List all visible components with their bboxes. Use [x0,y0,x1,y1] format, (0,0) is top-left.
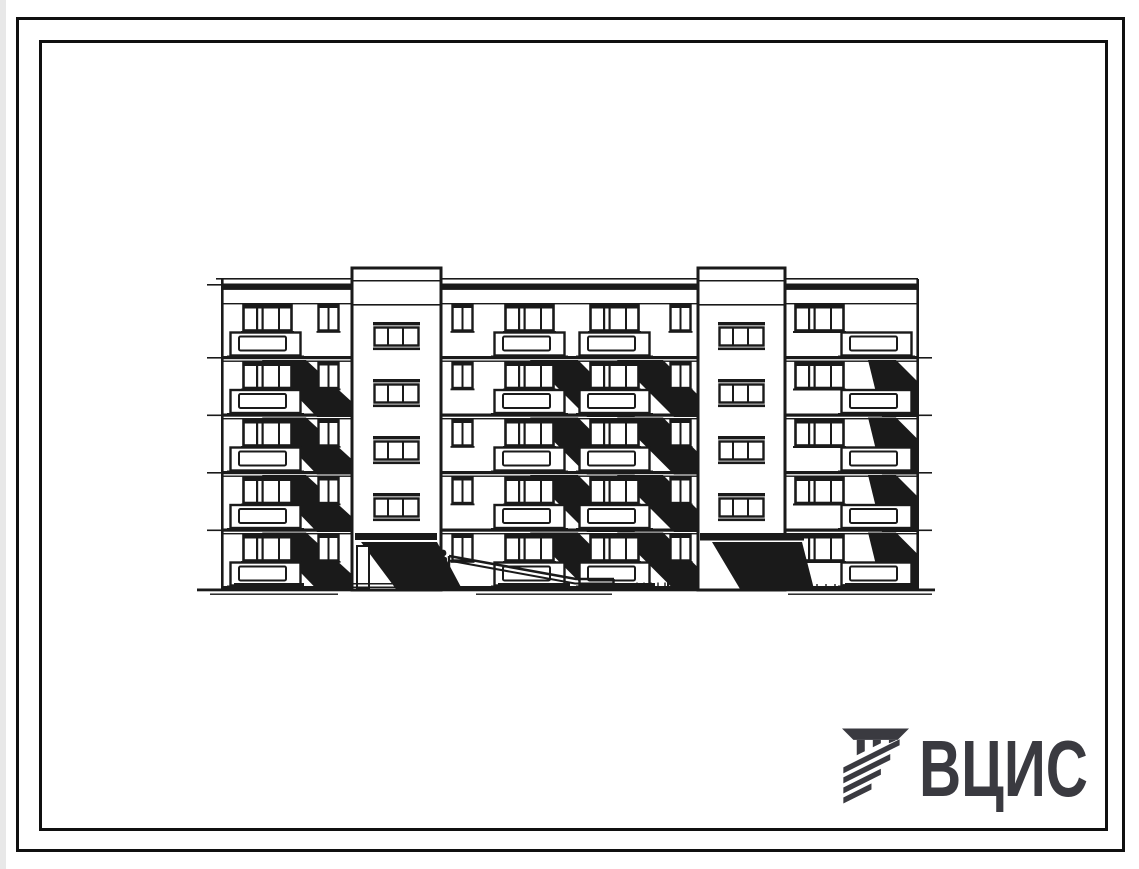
ground-line [197,589,935,595]
roof-parapet [216,278,918,290]
logo-text: ВЦИС [919,732,1088,806]
stair-tower-1 [350,268,462,590]
facade-right-section [785,303,918,647]
logo: ВЦИС [842,718,1139,806]
facade-middle-section [441,303,698,647]
facade-left-section [222,303,352,647]
logo-monogram-icon [842,724,909,804]
entrance-door-1 [357,546,369,588]
left-wall-line [221,279,224,590]
right-wall-line [916,279,919,590]
